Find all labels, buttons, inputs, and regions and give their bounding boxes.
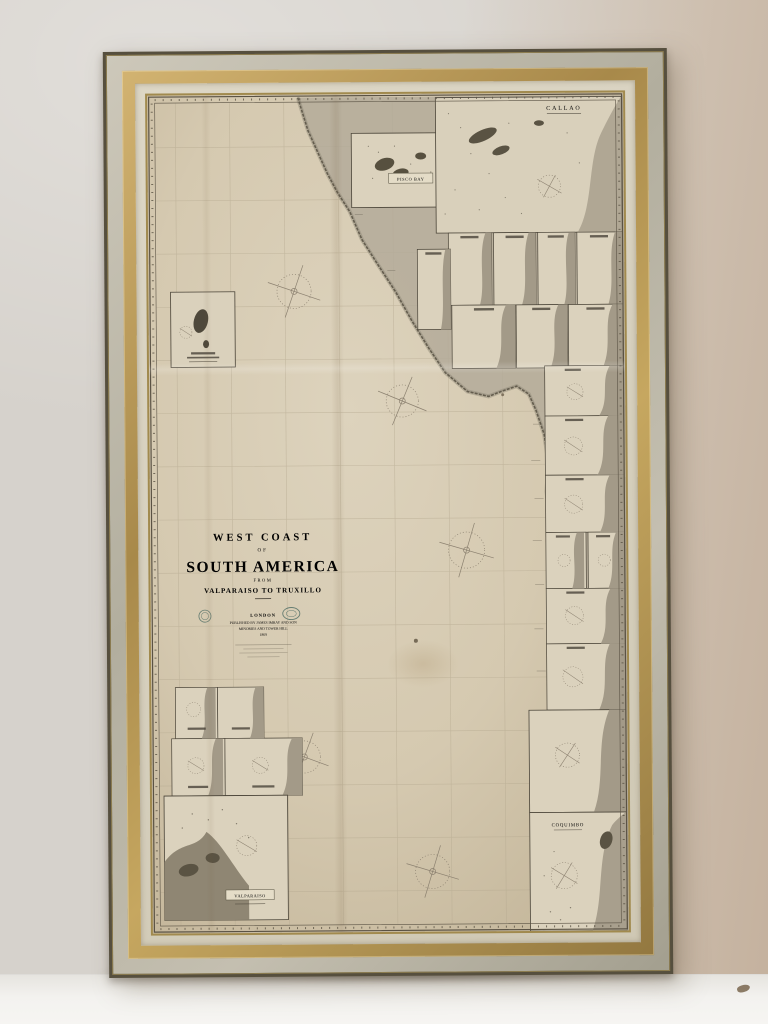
frame-ivory-liner: WEST COAST OF SOUTH AMERICA FROM VALPARA… <box>135 80 641 945</box>
inset-island <box>171 292 236 368</box>
picture-frame: WEST COAST OF SOUTH AMERICA FROM VALPARA… <box>103 48 673 978</box>
inset-coquimbo-caption: COQUIMBO <box>552 823 585 828</box>
frame-silver-band: WEST COAST OF SOUTH AMERICA FROM VALPARA… <box>106 51 670 975</box>
nautical-chart: WEST COAST OF SOUTH AMERICA FROM VALPARA… <box>147 92 629 933</box>
title-line-1: WEST COAST <box>213 532 312 544</box>
imprint-line-4: 1869 <box>260 633 267 637</box>
inset-pisco-bay-caption: PISCO BAY <box>397 177 424 182</box>
frame-gold-fillet: WEST COAST OF SOUTH AMERICA FROM VALPARA… <box>145 90 631 935</box>
inset-callao-caption: CALLAO <box>546 106 581 112</box>
inset-coquimbo-group: COQUIMBO <box>529 710 627 931</box>
chart-artwork: WEST COAST OF SOUTH AMERICA FROM VALPARA… <box>147 92 629 933</box>
inset-row2 <box>452 304 623 368</box>
inset-callao: CALLAO <box>435 96 622 233</box>
frame-gilt-band: WEST COAST OF SOUTH AMERICA FROM VALPARA… <box>122 67 654 959</box>
imprint-line-3: MINORIES AND TOWER HILL <box>239 627 288 631</box>
title-line-3: SOUTH AMERICA <box>186 558 339 576</box>
title-line-4: FROM <box>254 578 273 583</box>
inset-valparaiso: VALPARAISO <box>164 795 288 920</box>
title-line-5: VALPARAISO TO TRUXILLO <box>204 586 322 595</box>
title-line-2: OF <box>258 548 268 553</box>
photo-of-framed-map: WEST COAST OF SOUTH AMERICA FROM VALPARA… <box>0 0 768 1024</box>
imprint-line-2: PUBLISHED BY JAMES IMRAY AND SON <box>230 621 298 625</box>
imprint-line-1: LONDON <box>250 613 276 618</box>
inset-valparaiso-caption: VALPARAISO <box>234 893 265 898</box>
